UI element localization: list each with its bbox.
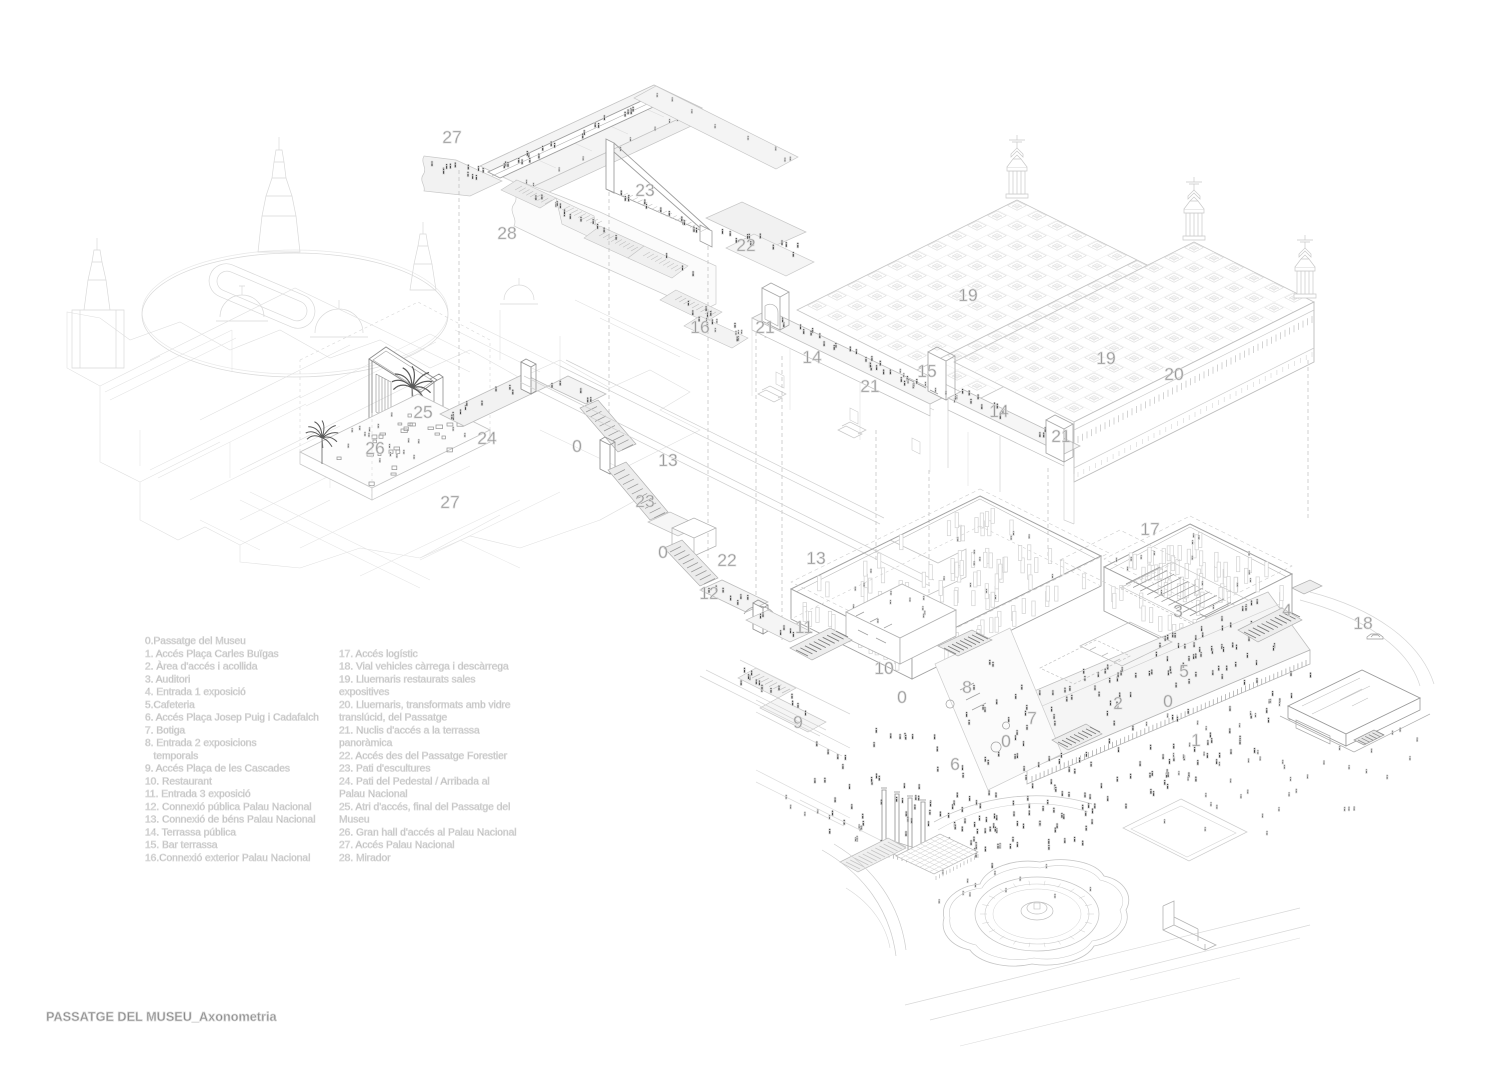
svg-text:22. Accés des del Passatge For: 22. Accés des del Passatge Forestier bbox=[339, 751, 508, 762]
svg-text:0: 0 bbox=[1163, 691, 1173, 711]
svg-text:3. Auditori: 3. Auditori bbox=[145, 674, 190, 685]
svg-text:2: 2 bbox=[1113, 693, 1123, 713]
svg-text:2. Àrea d'accés i acollida: 2. Àrea d'accés i acollida bbox=[145, 660, 258, 673]
svg-text:17: 17 bbox=[1140, 519, 1159, 539]
svg-text:Palau Nacional: Palau Nacional bbox=[339, 789, 408, 800]
svg-text:23: 23 bbox=[635, 180, 654, 200]
svg-text:19. Lluernaris restaurats sale: 19. Lluernaris restaurats sales bbox=[339, 674, 475, 685]
svg-text:21: 21 bbox=[1051, 426, 1070, 446]
svg-text:1: 1 bbox=[1191, 730, 1201, 750]
svg-text:18. Vial vehicles càrrega i de: 18. Vial vehicles càrrega i descàrrega bbox=[339, 662, 509, 673]
svg-text:28. Mirador: 28. Mirador bbox=[339, 853, 391, 864]
svg-text:22: 22 bbox=[736, 235, 755, 255]
svg-text:9: 9 bbox=[793, 712, 803, 732]
svg-text:7: 7 bbox=[1027, 708, 1037, 728]
svg-text:10: 10 bbox=[874, 658, 894, 678]
svg-text:15: 15 bbox=[917, 361, 936, 381]
svg-text:21: 21 bbox=[860, 376, 879, 396]
svg-text:25: 25 bbox=[413, 402, 432, 422]
svg-text:14: 14 bbox=[989, 401, 1009, 421]
svg-text:translúcid, del Passatge: translúcid, del Passatge bbox=[339, 713, 447, 724]
svg-text:6. Accés Plaça Josep Puig i Ca: 6. Accés Plaça Josep Puig i Cadafalch bbox=[145, 713, 319, 724]
svg-text:0: 0 bbox=[1001, 731, 1011, 751]
svg-text:23. Pati d'escultures: 23. Pati d'escultures bbox=[339, 764, 430, 775]
svg-text:12: 12 bbox=[699, 583, 718, 603]
svg-text:8. Entrada 2 exposicions: 8. Entrada 2 exposicions bbox=[145, 738, 257, 749]
svg-text:PASSATGE DEL MUSEU_Axonometria: PASSATGE DEL MUSEU_Axonometria bbox=[46, 1010, 277, 1024]
svg-text:27. Accés Palau Nacional: 27. Accés Palau Nacional bbox=[339, 840, 455, 851]
svg-text:13: 13 bbox=[658, 450, 677, 470]
svg-text:0.Passatge del Museu: 0.Passatge del Museu bbox=[145, 636, 246, 647]
svg-text:16.Connexió exterior Palau Nac: 16.Connexió exterior Palau Nacional bbox=[145, 853, 310, 864]
svg-text:0: 0 bbox=[658, 542, 668, 562]
svg-text:panoràmica: panoràmica bbox=[339, 738, 393, 749]
svg-text:21. Nuclis d'accés a la terras: 21. Nuclis d'accés a la terrassa bbox=[339, 725, 480, 736]
svg-text:17. Accés logístic: 17. Accés logístic bbox=[339, 649, 418, 660]
svg-text:18: 18 bbox=[1353, 613, 1372, 633]
svg-text:5.Cafeteria: 5.Cafeteria bbox=[145, 700, 195, 711]
svg-text:11: 11 bbox=[795, 617, 813, 637]
svg-text:21: 21 bbox=[755, 317, 774, 337]
svg-text:27: 27 bbox=[440, 492, 459, 512]
svg-text:10. Restaurant: 10. Restaurant bbox=[145, 776, 212, 787]
svg-text:7. Botiga: 7. Botiga bbox=[145, 725, 186, 736]
svg-text:20. Lluernaris, transformats a: 20. Lluernaris, transformats amb vidre bbox=[339, 700, 511, 711]
svg-text:Museu: Museu bbox=[339, 815, 370, 826]
svg-text:28: 28 bbox=[497, 223, 516, 243]
svg-text:19: 19 bbox=[958, 285, 977, 305]
svg-text:24: 24 bbox=[477, 428, 497, 448]
svg-text:23: 23 bbox=[635, 491, 654, 511]
svg-text:26. Gran hall d'accés al Palau: 26. Gran hall d'accés al Palau Nacional bbox=[339, 827, 517, 838]
svg-text:14: 14 bbox=[802, 347, 822, 367]
svg-text:16: 16 bbox=[690, 317, 709, 337]
svg-text:8: 8 bbox=[962, 677, 972, 697]
svg-text:11. Entrada 3 exposició: 11. Entrada 3 exposició bbox=[145, 789, 251, 800]
svg-text:14. Terrassa pública: 14. Terrassa pública bbox=[145, 827, 236, 838]
svg-text:15. Bar terrassa: 15. Bar terrassa bbox=[145, 840, 218, 851]
svg-text:4. Entrada 1 exposició: 4. Entrada 1 exposició bbox=[145, 687, 246, 698]
svg-text:3: 3 bbox=[1173, 601, 1183, 621]
svg-text:9. Accés Plaça de les Cascades: 9. Accés Plaça de les Cascades bbox=[145, 764, 290, 775]
svg-text:13: 13 bbox=[806, 548, 825, 568]
svg-text:1. Accés Plaça Carles Buïgas: 1. Accés Plaça Carles Buïgas bbox=[145, 649, 279, 660]
svg-text:24. Pati del Pedestal / Arriba: 24. Pati del Pedestal / Arribada al bbox=[339, 776, 490, 787]
svg-text:13. Connexió de béns Palau Nac: 13. Connexió de béns Palau Nacional bbox=[145, 815, 315, 826]
svg-text:0: 0 bbox=[572, 436, 582, 456]
svg-text:6: 6 bbox=[950, 754, 960, 774]
svg-text:27: 27 bbox=[442, 127, 461, 147]
svg-text:temporals: temporals bbox=[145, 751, 198, 762]
svg-text:4: 4 bbox=[1282, 600, 1292, 620]
svg-text:26: 26 bbox=[365, 438, 384, 458]
svg-text:5: 5 bbox=[1179, 661, 1189, 681]
svg-text:12. Connexió pública Palau Nac: 12. Connexió pública Palau Nacional bbox=[145, 802, 312, 813]
svg-text:22: 22 bbox=[717, 550, 736, 570]
svg-text:expositives: expositives bbox=[339, 687, 389, 698]
svg-text:20: 20 bbox=[1164, 364, 1184, 384]
svg-text:19: 19 bbox=[1096, 348, 1115, 368]
svg-text:0: 0 bbox=[897, 687, 907, 707]
svg-text:25. Atri d'accés, final del Pa: 25. Atri d'accés, final del Passatge del bbox=[339, 802, 510, 813]
